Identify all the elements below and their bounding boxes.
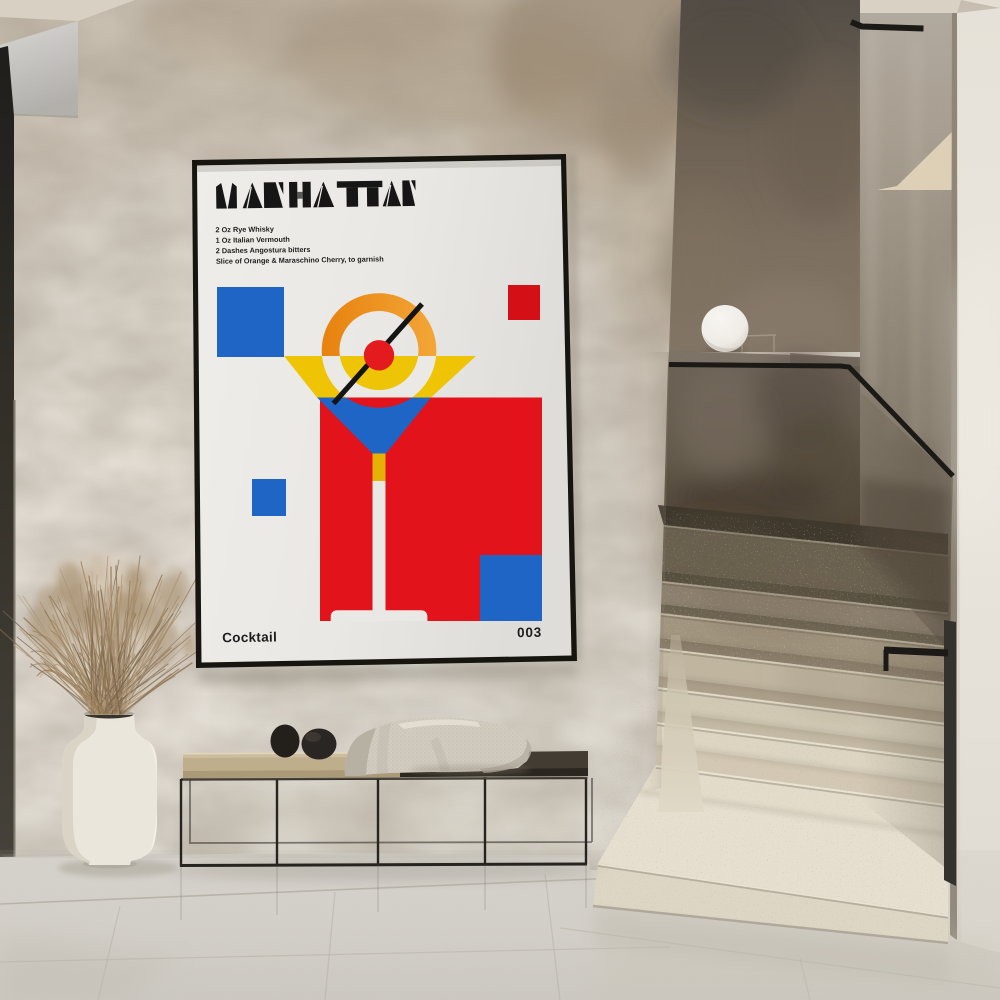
svg-text:1 Oz Italian Vermouth: 1 Oz Italian Vermouth xyxy=(216,235,290,245)
svg-text:2 Dashes Angostura bitters: 2 Dashes Angostura bitters xyxy=(216,245,311,255)
svg-text:003: 003 xyxy=(517,625,542,640)
svg-text:Cocktail: Cocktail xyxy=(222,629,277,645)
svg-text:2 Oz Rye Whisky: 2 Oz Rye Whisky xyxy=(215,224,274,234)
